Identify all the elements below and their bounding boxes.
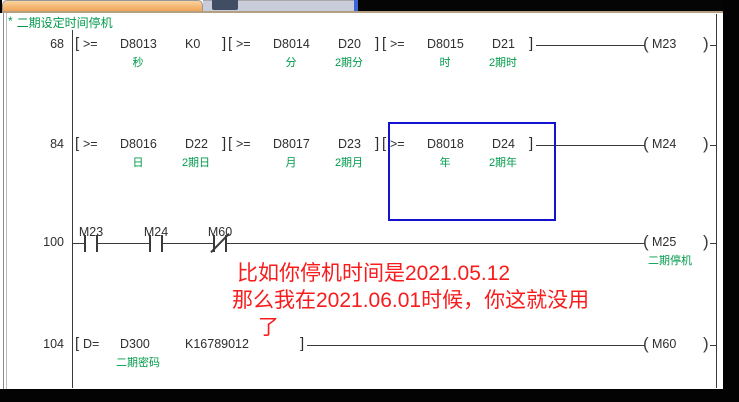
instruction-operand[interactable]: D22: [185, 137, 208, 151]
instruction-operand[interactable]: D8017: [273, 137, 310, 151]
instruction-open-bracket: [: [75, 136, 79, 151]
device-comment: 二期密码: [116, 354, 160, 370]
rung-number: 68: [34, 37, 64, 51]
rung-number: 104: [34, 337, 64, 351]
instruction-op[interactable]: >=: [236, 137, 251, 151]
ladder-wire: [710, 243, 716, 244]
instruction-operand[interactable]: D21: [492, 37, 515, 51]
instruction-open-bracket: [: [382, 136, 386, 151]
coil-close-paren: ): [703, 35, 709, 52]
right-power-rail: [716, 14, 717, 388]
annotation-line: 比如你停机时间是2021.05.12: [237, 257, 510, 287]
coil-open-paren: (: [643, 233, 649, 250]
bottom-black-bar: [0, 389, 739, 402]
ladder-wire: [710, 45, 716, 46]
device-comment: 分: [286, 54, 297, 70]
instruction-op[interactable]: >=: [390, 37, 405, 51]
device-comment: 秒: [133, 54, 144, 70]
coil-label[interactable]: M23: [652, 37, 676, 51]
instruction-op[interactable]: D=: [83, 337, 99, 351]
contact-gap: [85, 242, 96, 245]
left-power-rail: [72, 30, 73, 388]
instruction-op[interactable]: >=: [83, 37, 98, 51]
instruction-open-bracket: [: [382, 36, 386, 51]
rung-statement[interactable]: * 二期设定时间停机: [8, 14, 113, 31]
instruction-close-bracket: ]: [222, 36, 226, 51]
coil-close-paren: ): [703, 135, 709, 152]
instruction-op[interactable]: >=: [83, 137, 98, 151]
background-window-titlebar[interactable]: [2, 0, 203, 11]
coil-label[interactable]: M25: [652, 235, 676, 249]
coil-close-paren: ): [703, 335, 709, 352]
instruction-operand[interactable]: D8014: [273, 37, 310, 51]
instruction-open-bracket: [: [228, 36, 232, 51]
annotation-line: 了: [258, 311, 279, 341]
instruction-operand[interactable]: K16789012: [185, 337, 249, 351]
ladder-wire: [710, 145, 716, 146]
coil-comment: 二期停机: [648, 252, 692, 268]
instruction-operand[interactable]: D20: [338, 37, 361, 51]
device-comment: 时: [440, 54, 451, 70]
contact-label: M23: [79, 225, 103, 239]
instruction-operand[interactable]: D8013: [120, 37, 157, 51]
instruction-operand[interactable]: D23: [338, 137, 361, 151]
window-control-fragment: [212, 0, 238, 10]
left-window-border-outer: [3, 13, 4, 389]
top-black-strip: [358, 0, 739, 11]
instruction-close-bracket: ]: [375, 136, 379, 151]
device-comment: 日: [133, 154, 144, 170]
corner-notch: [0, 0, 2, 13]
statement-prefix: *: [8, 14, 13, 31]
instruction-close-bracket: ]: [300, 336, 304, 351]
annotation-line: 那么我在2021.06.01时候，你这就没用: [232, 284, 589, 314]
rung-number: 84: [34, 137, 64, 151]
instruction-op[interactable]: >=: [236, 37, 251, 51]
instruction-open-bracket: [: [75, 336, 79, 351]
coil-label[interactable]: M60: [652, 337, 676, 351]
instruction-close-bracket: ]: [529, 36, 533, 51]
device-comment: 2期分: [335, 54, 363, 70]
instruction-operand[interactable]: K0: [185, 37, 200, 51]
device-comment: 2期时: [489, 54, 517, 70]
instruction-operand[interactable]: D8016: [120, 137, 157, 151]
coil-label[interactable]: M24: [652, 137, 676, 151]
instruction-open-bracket: [: [228, 136, 232, 151]
contact-label: M24: [144, 225, 168, 239]
device-comment: 2期日: [182, 154, 210, 170]
coil-open-paren: (: [643, 135, 649, 152]
ladder-wire: [536, 45, 645, 46]
instruction-operand[interactable]: D300: [120, 337, 150, 351]
contact-label: M60: [208, 225, 232, 239]
statement-text: 二期设定时间停机: [17, 14, 113, 31]
window-border-line: [0, 11, 739, 13]
instruction-close-bracket: ]: [222, 136, 226, 151]
ladder-wire: [710, 345, 716, 346]
instruction-close-bracket: ]: [375, 36, 379, 51]
contact-gap: [150, 242, 161, 245]
coil-open-paren: (: [643, 35, 649, 52]
selection-box: [388, 122, 556, 221]
ladder-wire: [307, 345, 645, 346]
device-comment: 2期月: [335, 154, 363, 170]
coil-close-paren: ): [703, 233, 709, 250]
left-window-border-inner: [6, 13, 7, 389]
right-black-bar: [723, 0, 739, 402]
instruction-open-bracket: [: [75, 36, 79, 51]
ladder-editor-window: * 二期设定时间停机 68[>=D8013K0]秒[>=D8014D20]分2期…: [0, 0, 739, 402]
coil-open-paren: (: [643, 335, 649, 352]
device-comment: 月: [286, 154, 297, 170]
instruction-operand[interactable]: D8015: [427, 37, 464, 51]
rung-number: 100: [34, 235, 64, 249]
